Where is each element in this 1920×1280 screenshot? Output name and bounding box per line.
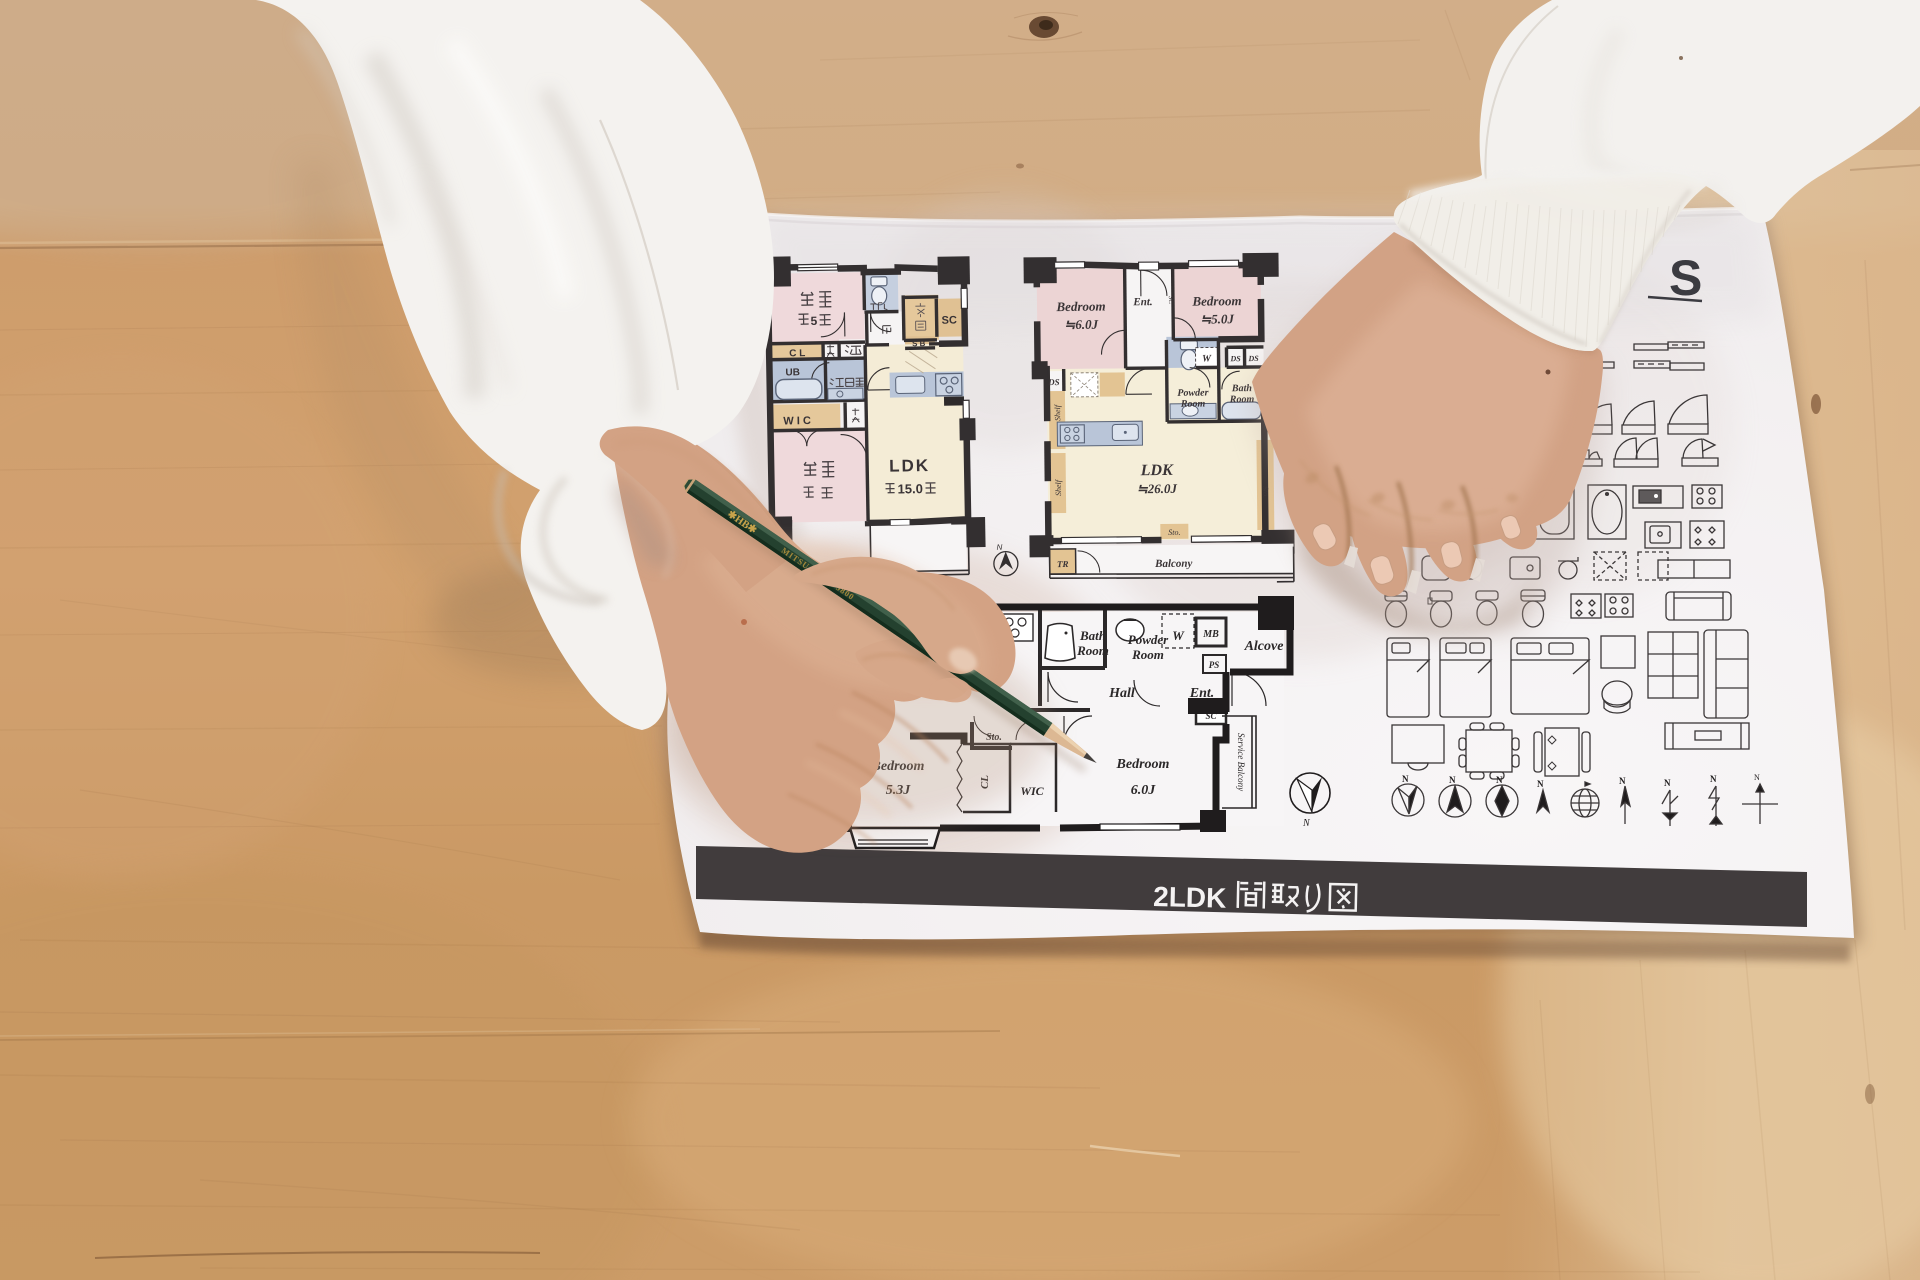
svg-text:UB: UB: [785, 367, 800, 378]
svg-text:W: W: [1172, 628, 1185, 643]
svg-text:DS: DS: [1047, 377, 1060, 387]
svg-text:LDK: LDK: [889, 456, 930, 476]
svg-text:PS: PS: [1209, 660, 1220, 670]
svg-text:N: N: [1664, 778, 1671, 788]
svg-text:N: N: [1496, 775, 1503, 785]
svg-text:S: S: [1669, 250, 1702, 306]
svg-text:Bedroom: Bedroom: [1116, 757, 1170, 772]
svg-text:Alcove: Alcove: [1244, 639, 1284, 654]
svg-text:SC: SC: [942, 314, 958, 326]
svg-text:Ent.: Ent.: [1132, 296, 1152, 308]
svg-text:N: N: [1302, 818, 1311, 829]
svg-text:≒6.0J: ≒6.0J: [1064, 317, 1098, 332]
svg-text:Balcony: Balcony: [1154, 558, 1193, 570]
svg-text:DS: DS: [1229, 354, 1241, 363]
svg-text:Shelf: Shelf: [1053, 403, 1062, 421]
svg-text:≒5.0J: ≒5.0J: [1200, 311, 1234, 326]
svg-text:Room: Room: [1076, 643, 1109, 658]
svg-text:N: N: [1537, 779, 1544, 789]
svg-text:≒26.0J: ≒26.0J: [1137, 481, 1178, 496]
svg-text:Room: Room: [1131, 647, 1164, 662]
svg-text:6.0J: 6.0J: [1131, 783, 1157, 798]
svg-text:Bedroom: Bedroom: [1055, 299, 1105, 315]
svg-text:Room: Room: [1180, 399, 1206, 410]
svg-text:Sto.: Sto.: [1261, 486, 1270, 498]
svg-text:MB: MB: [1202, 629, 1219, 640]
svg-text:2LDK: 2LDK: [1153, 881, 1227, 914]
svg-text:Sto.: Sto.: [1168, 528, 1180, 537]
svg-text:Hall: Hall: [1108, 686, 1135, 701]
svg-text:N: N: [997, 543, 1003, 552]
svg-text:Powder: Powder: [1177, 387, 1208, 398]
svg-text:TR: TR: [1057, 559, 1069, 569]
svg-text:WIC: WIC: [1020, 784, 1044, 798]
svg-text:5: 5: [810, 314, 817, 328]
svg-text:Powder: Powder: [1128, 632, 1169, 647]
svg-text:15.0: 15.0: [897, 481, 923, 496]
svg-text:N: N: [1402, 774, 1409, 784]
svg-text:N: N: [1754, 773, 1760, 782]
svg-text:C L: C L: [789, 348, 805, 359]
svg-text:N: N: [1710, 774, 1717, 784]
svg-text:Bath: Bath: [1079, 628, 1106, 643]
svg-text:S B: S B: [912, 339, 926, 348]
svg-text:LDK: LDK: [1140, 462, 1175, 479]
svg-text:DS: DS: [1247, 354, 1259, 363]
svg-text:Bedroom: Bedroom: [1191, 293, 1241, 309]
svg-text:N: N: [1449, 775, 1456, 785]
svg-text:Shelf: Shelf: [1054, 478, 1063, 496]
svg-text:W I C: W I C: [783, 415, 811, 427]
svg-text:Service Balcony: Service Balcony: [1236, 733, 1246, 791]
svg-text:SC: SC: [1167, 296, 1175, 305]
svg-text:W: W: [1202, 353, 1212, 364]
svg-text:N: N: [1619, 776, 1626, 786]
